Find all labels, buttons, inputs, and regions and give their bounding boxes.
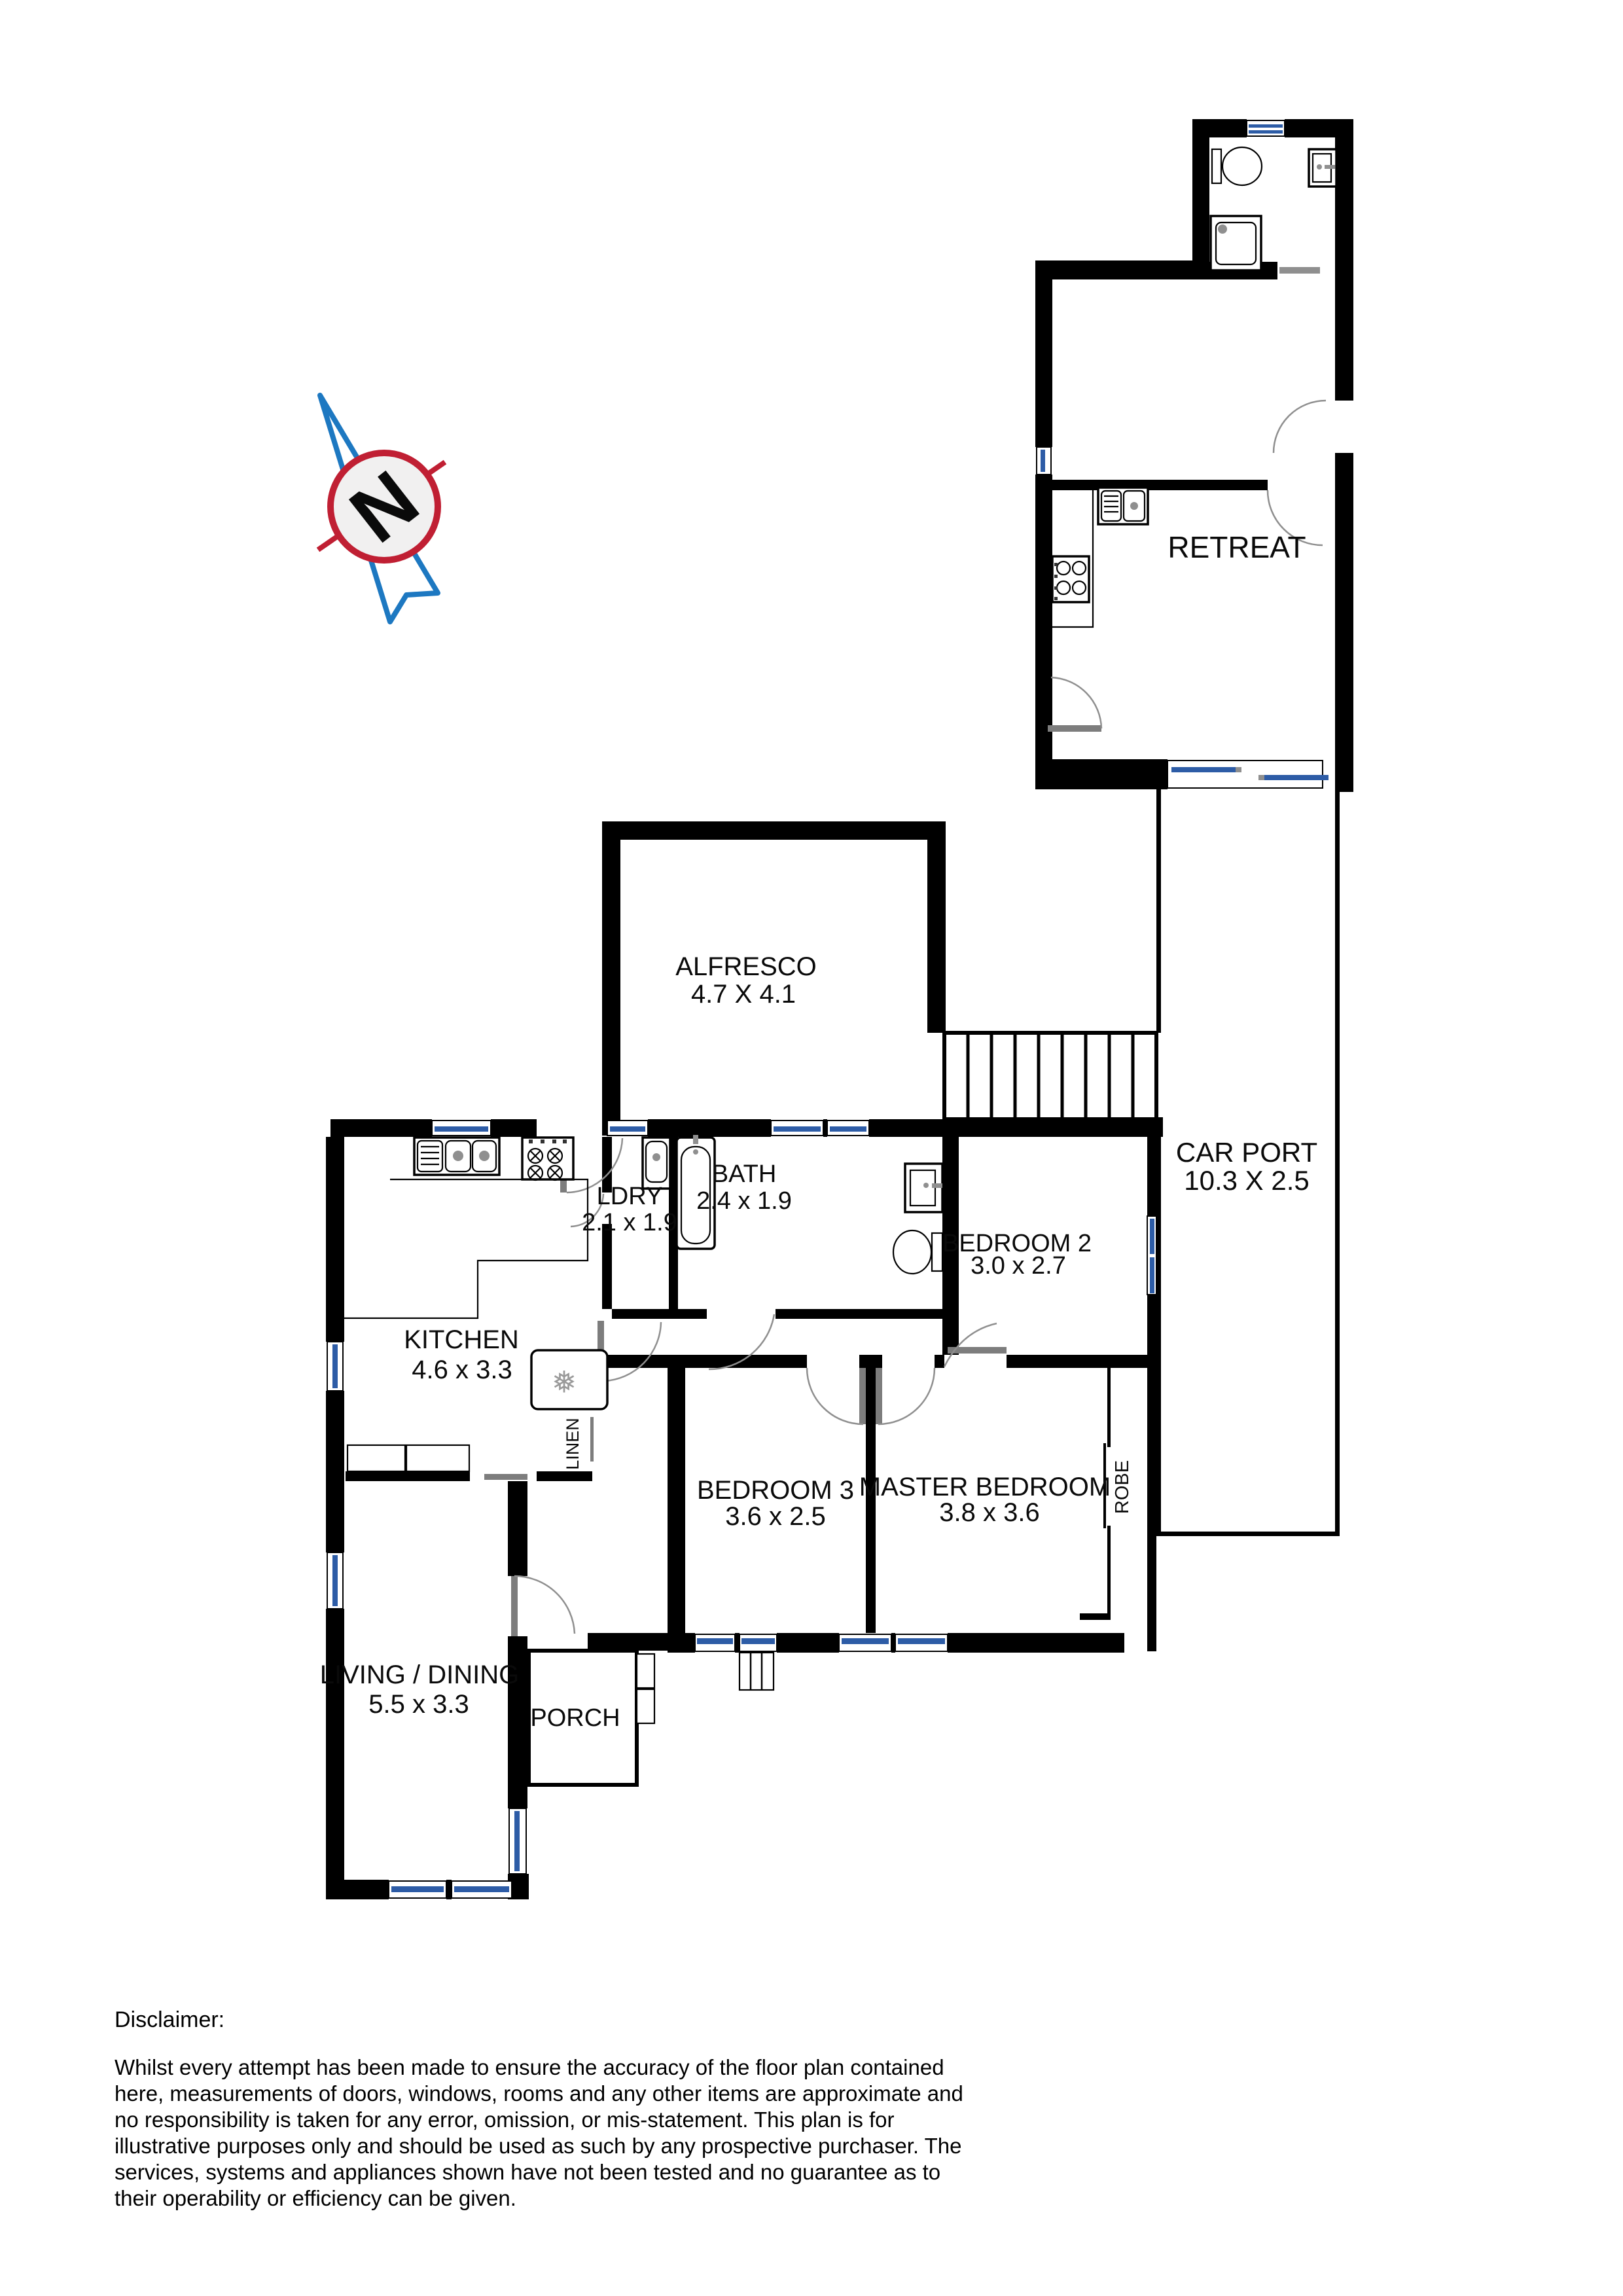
bench-cabinet: [406, 1445, 469, 1471]
bath-laundry-fixtures: [643, 1135, 942, 1274]
retreat-ensuite-fixtures: [1211, 147, 1336, 270]
dims-bedroom3: 3.6 x 2.5: [725, 1502, 825, 1531]
disclaimer-title: Disclaimer:: [115, 2007, 224, 2032]
label-porch: PORCH: [530, 1704, 620, 1732]
bath-toilet-tank-icon: [932, 1233, 942, 1271]
disclaimer-line-6: their operability or efficiency can be g…: [115, 2186, 516, 2210]
entry-steps-icon: [740, 1653, 774, 1690]
dims-master-bedroom: 3.8 x 3.6: [939, 1498, 1039, 1527]
disclaimer-block: Disclaimer: Whilst every attempt has bee…: [115, 2007, 963, 2210]
dims-living-dining: 5.5 x 3.3: [368, 1690, 469, 1719]
disclaimer-line-4: illustrative purposes only and should be…: [115, 2134, 962, 2158]
disclaimer-line-5: services, systems and appliances shown h…: [115, 2160, 940, 2184]
label-robe: ROBE: [1112, 1460, 1133, 1514]
kitchen-bench: [344, 1179, 588, 1318]
fridge-snowflake-icon: ❅: [552, 1366, 577, 1399]
label-living-dining: LIVING / DINING: [320, 1660, 520, 1689]
retreat-structure-walls: [1035, 119, 1353, 792]
dims-bath: 2.4 x 1.9: [696, 1187, 792, 1215]
floor-plan-page: N: [0, 0, 1623, 2296]
label-bedroom3: BEDROOM 3: [697, 1476, 854, 1505]
dims-bedroom2: 3.0 x 2.7: [971, 1252, 1066, 1280]
label-alfresco: ALFRESCO: [675, 952, 817, 981]
bench-cabinet: [348, 1445, 405, 1471]
dims-alfresco: 4.7 X 4.1: [691, 980, 796, 1009]
dims-laundry: 2.1 x 1.9: [582, 1209, 677, 1236]
dims-carport: 10.3 X 2.5: [1184, 1165, 1309, 1196]
label-bath: BATH: [712, 1160, 777, 1188]
label-laundry: LDRY: [597, 1183, 663, 1210]
label-master-bedroom: MASTER BEDROOM: [859, 1473, 1111, 1501]
disclaimer-line-1: Whilst every attempt has been made to en…: [115, 2055, 944, 2079]
stairs: [942, 1033, 1163, 1137]
label-kitchen: KITCHEN: [404, 1325, 519, 1354]
toilet-tank-icon: [1212, 149, 1221, 183]
label-linen: LINEN: [563, 1418, 582, 1470]
label-retreat: RETREAT: [1168, 530, 1306, 564]
label-carport: CAR PORT: [1176, 1137, 1317, 1168]
disclaimer-line-3: no responsibility is taken for any error…: [115, 2108, 895, 2132]
porch-steps-icon: [637, 1654, 654, 1688]
dims-kitchen: 4.6 x 3.3: [412, 1355, 512, 1384]
floor-plan-canvas: N: [0, 0, 1623, 2296]
toilet-bowl-icon: [1222, 147, 1262, 185]
bath-toilet-bowl-icon: [893, 1230, 931, 1274]
disclaimer-line-2: here, measurements of doors, windows, ro…: [115, 2081, 963, 2106]
retreat-kitchenette: [1052, 488, 1148, 627]
north-compass-icon: N: [318, 395, 445, 622]
